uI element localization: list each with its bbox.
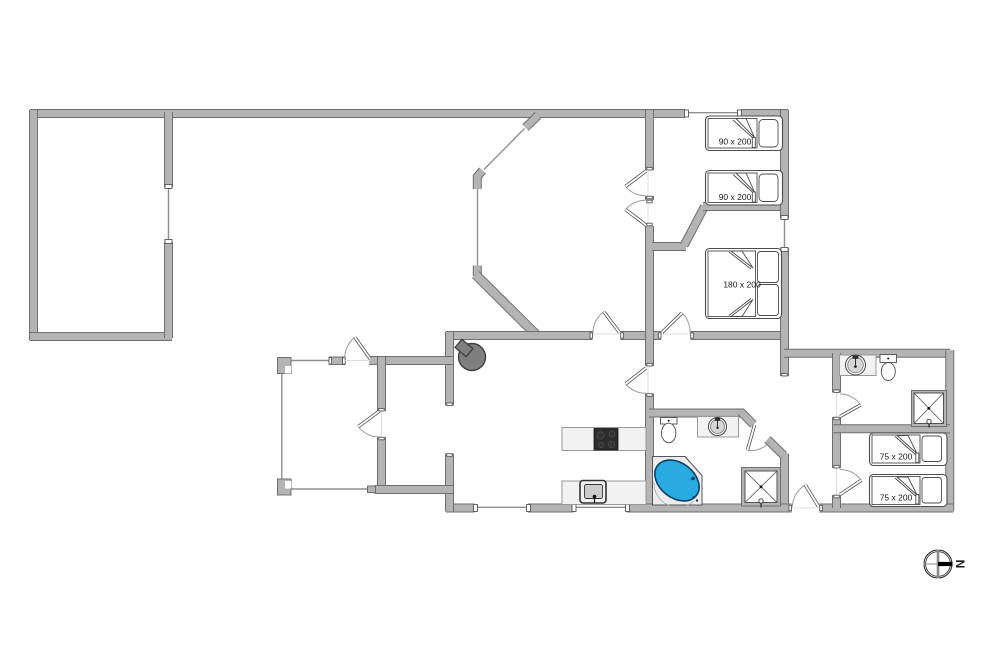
svg-text:75 x 200: 75 x 200 xyxy=(880,452,913,462)
svg-text:90 x 200: 90 x 200 xyxy=(719,192,752,202)
svg-text:180 x 200: 180 x 200 xyxy=(723,280,761,290)
svg-text:N: N xyxy=(953,560,967,569)
svg-text:90 x 200: 90 x 200 xyxy=(719,137,752,147)
svg-text:75 x 200: 75 x 200 xyxy=(880,493,913,503)
